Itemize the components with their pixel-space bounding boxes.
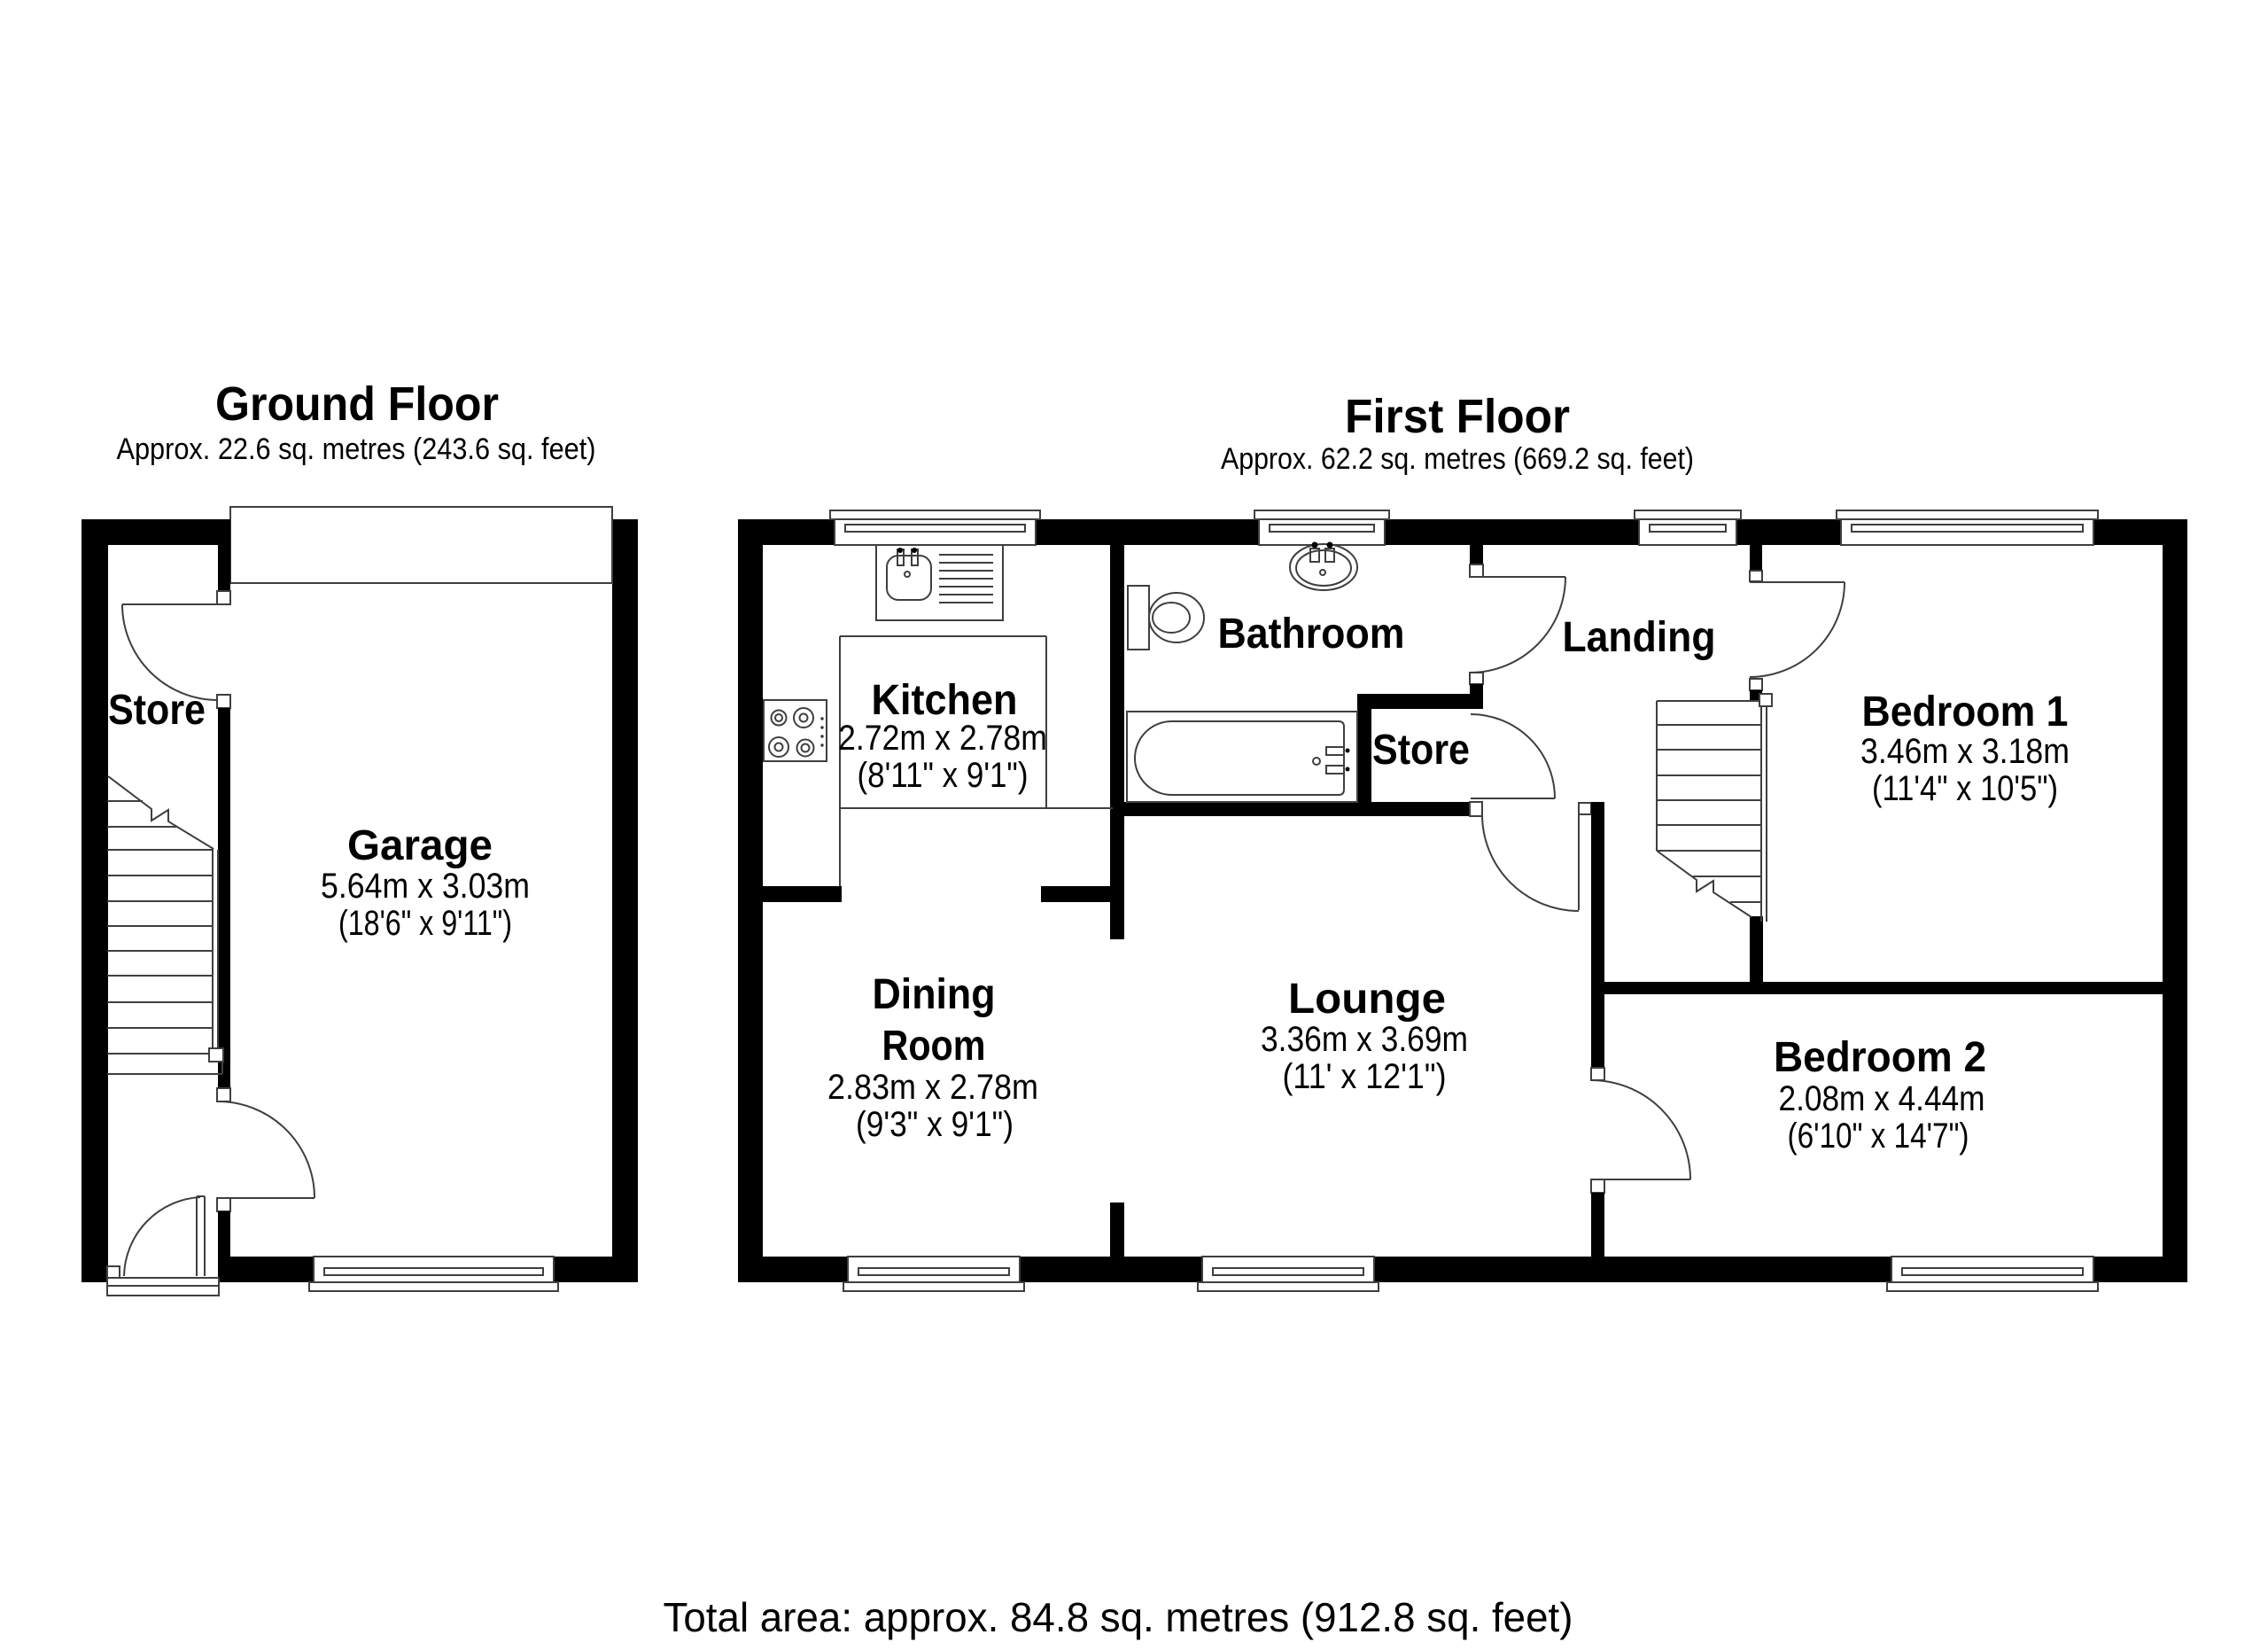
svg-text:Bedroom 1: Bedroom 1 — [1862, 689, 2069, 735]
svg-text:(11' x 12'1"): (11' x 12'1") — [1283, 1057, 1447, 1096]
svg-text:(11'4" x 10'5"): (11'4" x 10'5") — [1872, 769, 2058, 808]
svg-text:2.83m x 2.78m: 2.83m x 2.78m — [827, 1068, 1038, 1107]
svg-text:2.08m x 4.44m: 2.08m x 4.44m — [1779, 1079, 1985, 1118]
svg-text:Bathroom: Bathroom — [1218, 611, 1405, 658]
svg-text:3.36m x 3.69m: 3.36m x 3.69m — [1261, 1020, 1468, 1059]
svg-text:Room: Room — [882, 1023, 986, 1070]
svg-text:(6'10" x 14'7"): (6'10" x 14'7") — [1788, 1117, 1969, 1156]
svg-text:Kitchen: Kitchen — [872, 677, 1018, 724]
svg-text:Approx. 22.6 sq. metres (243.6: Approx. 22.6 sq. metres (243.6 sq. feet) — [117, 432, 596, 466]
svg-text:Dining: Dining — [873, 971, 996, 1018]
svg-text:Landing: Landing — [1563, 614, 1716, 661]
svg-text:(18'6" x 9'11"): (18'6" x 9'11") — [338, 904, 512, 943]
svg-text:(8'11" x 9'1"): (8'11" x 9'1") — [858, 756, 1029, 795]
svg-text:(9'3" x 9'1"): (9'3" x 9'1") — [856, 1105, 1014, 1144]
svg-text:First Floor: First Floor — [1345, 390, 1570, 443]
svg-text:Garage: Garage — [347, 822, 493, 869]
svg-text:2.72m x 2.78m: 2.72m x 2.78m — [838, 719, 1047, 758]
svg-text:Store: Store — [108, 687, 206, 734]
svg-text:Store: Store — [1372, 727, 1470, 774]
svg-text:Ground Floor: Ground Floor — [215, 377, 499, 431]
svg-text:Approx. 62.2 sq. metres (669.2: Approx. 62.2 sq. metres (669.2 sq. feet) — [1221, 442, 1694, 476]
svg-text:Total area: approx. 84.8 sq. m: Total area: approx. 84.8 sq. metres (912… — [664, 1594, 1573, 1640]
svg-text:Bedroom 2: Bedroom 2 — [1774, 1034, 1986, 1081]
svg-text:3.46m x 3.18m: 3.46m x 3.18m — [1860, 732, 2070, 771]
svg-text:Lounge: Lounge — [1288, 976, 1446, 1023]
svg-text:5.64m x 3.03m: 5.64m x 3.03m — [321, 867, 530, 906]
